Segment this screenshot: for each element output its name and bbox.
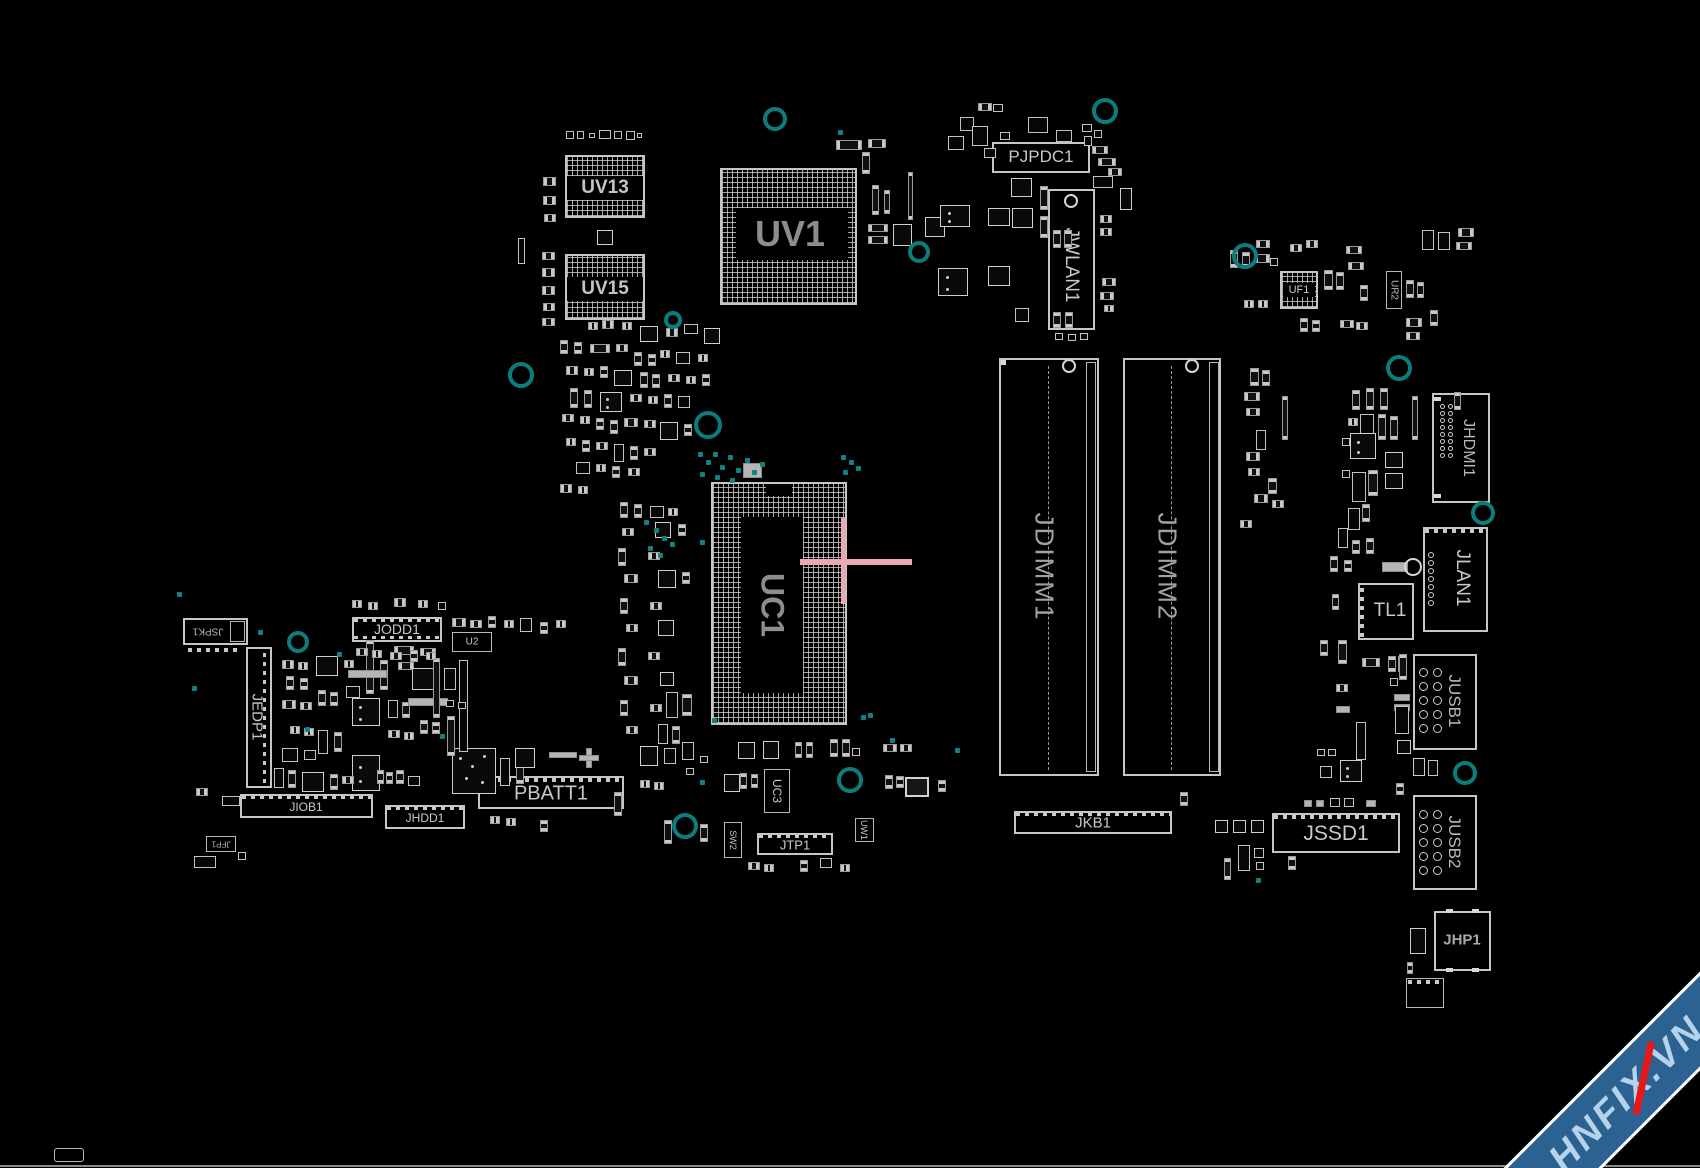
passive-component [304, 750, 316, 760]
passive-component [948, 136, 964, 150]
passive-component [352, 600, 362, 608]
component-label-jdimm2: JDIMM2 [1152, 513, 1183, 622]
passive-component [978, 103, 992, 111]
passive-component [1332, 594, 1339, 610]
mounting-hole [837, 767, 863, 793]
passive-component [1362, 504, 1370, 522]
passive-component [1068, 334, 1076, 341]
passive-component [1108, 168, 1122, 176]
passive-component [1304, 800, 1312, 807]
mounting-hole [763, 107, 787, 131]
passive-component [566, 438, 576, 446]
passive-component [872, 185, 879, 215]
passive-component [1458, 228, 1474, 237]
component-jdimm1-latch [1086, 362, 1096, 772]
passive-component [600, 366, 608, 378]
passive-component [682, 694, 692, 716]
connector-pin [1440, 411, 1445, 416]
test-point [715, 475, 720, 480]
passive-component [702, 374, 710, 386]
passive-component [386, 772, 393, 784]
passive-component [584, 390, 592, 408]
passive-component [896, 776, 904, 788]
passive-component [1324, 270, 1333, 290]
passive-component [634, 352, 642, 366]
passive-component [1120, 188, 1132, 210]
passive-component [1413, 758, 1425, 776]
passive-component [556, 620, 566, 628]
connector-pin [1448, 453, 1453, 458]
passive-component [588, 322, 598, 330]
passive-component [740, 773, 747, 789]
passive-component [1340, 320, 1354, 328]
passive-component [1336, 706, 1350, 713]
passive-component [893, 224, 912, 246]
passive-component [408, 698, 448, 706]
test-point [856, 466, 861, 471]
passive-component [1215, 820, 1228, 833]
passive-component [620, 598, 628, 614]
passive-component [520, 618, 532, 632]
connector-pin [1428, 552, 1434, 558]
test-point [728, 455, 733, 460]
component-label-sw2: SW2 [728, 830, 738, 850]
passive-component [868, 236, 888, 244]
component-label-jfp1: JFP1 [212, 840, 231, 849]
component-label-pjpdc1: PJPDC1 [1008, 147, 1073, 167]
passive-component [652, 374, 660, 388]
passive-component [432, 722, 440, 734]
passive-component [610, 420, 618, 434]
test-point [700, 780, 705, 785]
passive-component [622, 322, 632, 330]
connector-pin [1419, 668, 1428, 677]
passive-component [1080, 333, 1088, 340]
passive-component [346, 686, 360, 698]
passive-component [666, 692, 678, 718]
passive-component [698, 354, 708, 362]
passive-component [658, 724, 668, 744]
passive-component [1053, 230, 1061, 248]
passive-component [318, 730, 328, 754]
passive-component [420, 720, 428, 734]
passive-component [640, 780, 650, 788]
passive-component [648, 354, 656, 366]
passive-component [1015, 308, 1029, 322]
test-point [890, 738, 895, 743]
component-jssd1-pins [1274, 815, 1398, 819]
passive-component [540, 622, 548, 634]
passive-component [1233, 820, 1246, 833]
passive-component [938, 780, 946, 792]
connector-pin [1428, 568, 1434, 574]
passive-component [566, 131, 574, 139]
passive-component [596, 442, 608, 450]
passive-component [282, 660, 294, 669]
test-point [849, 460, 854, 465]
passive-component [584, 368, 594, 376]
connector-pin [1440, 432, 1445, 437]
passive-component [282, 748, 298, 762]
connector-pin [1419, 852, 1428, 861]
component-label-uv15: UV15 [581, 278, 629, 300]
passive-component [1397, 740, 1411, 754]
passive-component [620, 502, 628, 518]
passive-component [614, 370, 632, 386]
mounting-hole [508, 362, 534, 388]
component-label-uv1: UV1 [755, 213, 825, 255]
passive-component [684, 324, 698, 334]
passive-component [368, 602, 378, 610]
passive-component [1092, 146, 1108, 154]
component-jhp1-notch [1446, 909, 1453, 913]
passive-component [330, 692, 338, 706]
passive-component [618, 648, 626, 666]
passive-component [654, 782, 664, 790]
passive-component [452, 748, 496, 794]
passive-component [1244, 392, 1260, 401]
passive-component [1396, 783, 1404, 795]
passive-component [1317, 749, 1325, 756]
passive-component [1244, 300, 1254, 308]
passive-component [290, 726, 300, 734]
passive-component [1000, 132, 1010, 140]
passive-component [574, 342, 582, 354]
passive-component [1338, 528, 1348, 548]
passive-component [543, 196, 556, 205]
passive-component [644, 448, 656, 456]
passive-component [549, 752, 577, 758]
passive-component [622, 528, 634, 536]
passive-component [650, 506, 664, 518]
passive-component [542, 252, 555, 260]
passive-component [668, 508, 678, 516]
passive-component [1406, 332, 1420, 340]
passive-component [390, 652, 402, 660]
test-point [736, 468, 741, 473]
passive-component [988, 266, 1010, 286]
passive-component [660, 672, 674, 686]
passive-component [1251, 820, 1264, 833]
test-point [713, 452, 718, 457]
passive-component [616, 344, 628, 352]
passive-component [1342, 438, 1350, 446]
passive-component [836, 140, 862, 150]
passive-component [704, 328, 720, 344]
passive-component [800, 860, 808, 872]
passive-component [1102, 278, 1116, 286]
test-point [440, 734, 445, 739]
passive-component [377, 770, 384, 784]
test-point [698, 452, 703, 457]
passive-component [1360, 285, 1368, 301]
passive-component [352, 698, 380, 726]
passive-component [678, 396, 690, 408]
passive-component [1270, 258, 1278, 266]
passive-component [1056, 130, 1072, 142]
passive-component [640, 372, 648, 388]
passive-component [852, 748, 860, 756]
mounting-hole [664, 311, 682, 329]
passive-component [1422, 230, 1434, 250]
passive-component [1417, 282, 1424, 298]
passive-component [630, 394, 642, 402]
passive-component [1104, 305, 1114, 312]
passive-component [1336, 272, 1344, 290]
passive-component [404, 732, 414, 740]
passive-component [582, 440, 590, 452]
passive-component [1028, 117, 1048, 133]
passive-component [543, 177, 556, 186]
passive-component [1250, 368, 1259, 386]
component-jlan1-pins [1425, 529, 1486, 533]
passive-component [660, 350, 670, 358]
passive-component [1282, 396, 1288, 440]
test-point [1256, 878, 1261, 883]
connector-pin [1428, 592, 1434, 598]
passive-component [1040, 216, 1048, 238]
test-point [670, 542, 675, 547]
passive-component [356, 648, 368, 656]
test-point [868, 713, 873, 718]
passive-component [286, 676, 294, 690]
passive-component [282, 700, 296, 709]
passive-component [1406, 280, 1414, 298]
passive-component [238, 852, 246, 860]
passive-component [344, 660, 354, 668]
component-label-jlan1: JLAN1 [1451, 549, 1473, 606]
passive-component [1385, 452, 1403, 468]
passive-component [640, 746, 658, 766]
mounting-hole [1092, 98, 1118, 124]
passive-component [1399, 654, 1407, 680]
passive-component [1320, 640, 1328, 656]
passive-component [868, 224, 888, 232]
passive-component [1385, 473, 1403, 489]
component-jhp1-aux-pins [1408, 980, 1442, 984]
passive-component [624, 418, 638, 427]
passive-component [763, 741, 779, 759]
connector-pin [1433, 668, 1442, 677]
test-point [700, 472, 705, 477]
passive-component [1246, 408, 1260, 416]
passive-component [764, 864, 774, 872]
passive-component [1366, 800, 1376, 807]
passive-component [1100, 215, 1112, 223]
connector-pin [1448, 425, 1453, 430]
passive-component [1338, 640, 1347, 664]
passive-component [1094, 130, 1102, 138]
passive-component [515, 748, 535, 768]
component-label-uc1: UC1 [754, 573, 791, 637]
connector-pin [1440, 439, 1445, 444]
passive-component [1430, 310, 1438, 326]
passive-component [1407, 962, 1413, 974]
test-point [745, 458, 750, 463]
mounting-hole [1232, 243, 1258, 269]
passive-component [334, 732, 342, 752]
passive-component [580, 416, 590, 424]
passive-component [630, 446, 638, 460]
passive-component [433, 658, 440, 718]
passive-component [686, 376, 696, 384]
passive-component [506, 818, 516, 826]
passive-component [1348, 508, 1360, 530]
passive-component [600, 392, 622, 412]
passive-component [1328, 749, 1336, 756]
passive-component [1258, 300, 1268, 308]
passive-component [1388, 656, 1396, 672]
passive-component [1348, 262, 1364, 270]
passive-component [300, 678, 308, 690]
passive-component [1346, 246, 1362, 254]
component-jhdmi1-notch [1434, 494, 1441, 498]
passive-component [388, 730, 400, 738]
connector-pin [1419, 824, 1428, 833]
passive-component [700, 756, 708, 763]
component-label-pbatt1: PBATT1 [514, 783, 588, 806]
passive-component [408, 776, 420, 786]
passive-component [599, 130, 611, 139]
passive-component [1248, 468, 1260, 476]
passive-component [1312, 320, 1320, 332]
connector-pin [1419, 724, 1428, 733]
passive-component [316, 656, 338, 676]
passive-component [302, 772, 324, 792]
passive-component [672, 726, 680, 744]
component-label-uv13: UV13 [581, 177, 629, 199]
passive-component [1012, 208, 1033, 228]
passive-component [664, 394, 672, 408]
passive-component [596, 464, 606, 472]
passive-component [1330, 556, 1338, 572]
passive-component [1256, 430, 1266, 450]
passive-component [1410, 928, 1426, 954]
connector-pin [1419, 810, 1428, 819]
passive-component [1246, 452, 1260, 461]
component-label-tl1: TL1 [1374, 600, 1407, 622]
connector-pin [1433, 810, 1442, 819]
passive-component [1344, 798, 1354, 807]
passive-component [1055, 333, 1063, 340]
passive-component [1053, 312, 1061, 328]
passive-component [1380, 388, 1388, 410]
passive-component [458, 702, 466, 709]
passive-component [885, 775, 893, 789]
passive-component [438, 602, 446, 610]
passive-component [637, 133, 642, 138]
passive-component [644, 420, 656, 428]
passive-component [614, 131, 622, 139]
passive-component [795, 742, 802, 758]
passive-component [724, 774, 740, 792]
connector-pin [1433, 724, 1442, 733]
connector-pin [1433, 852, 1442, 861]
passive-component [418, 600, 428, 608]
passive-component [372, 650, 382, 658]
passive-component [972, 126, 988, 146]
passive-component [542, 286, 555, 295]
passive-component [868, 139, 886, 148]
component-label-uf1: UF1 [1289, 284, 1310, 296]
passive-component [396, 770, 404, 784]
passive-component [684, 424, 692, 436]
test-point [712, 718, 717, 723]
passive-component [602, 320, 614, 329]
component-label-jtp1: JTP1 [780, 838, 810, 853]
passive-component [300, 702, 312, 710]
test-point [843, 470, 848, 475]
mounting-hole [1453, 761, 1477, 785]
component-jhp1-notch [1472, 968, 1479, 972]
passive-component [452, 618, 466, 627]
passive-component [1412, 396, 1418, 440]
mounting-hole [287, 631, 309, 653]
mounting-hole [1471, 501, 1495, 525]
test-point [841, 455, 846, 460]
component-label-jhp1: JHP1 [1443, 932, 1481, 949]
passive-component [626, 726, 638, 734]
passive-component [1340, 760, 1362, 782]
component-jdimm2-latch [1209, 362, 1219, 772]
passive-component [1256, 240, 1270, 248]
component-label-jssd1: JSSD1 [1303, 822, 1368, 846]
passive-component [624, 676, 638, 685]
test-point [644, 520, 649, 525]
connector-pin [1448, 418, 1453, 423]
passive-component [738, 742, 755, 759]
passive-component [1428, 760, 1438, 776]
connector-pin [1433, 866, 1442, 875]
passive-component [618, 548, 626, 566]
component-jhp1-notch [1472, 909, 1479, 913]
passive-component [1268, 478, 1277, 494]
passive-component [504, 620, 514, 628]
passive-component [820, 858, 832, 868]
passive-component [330, 774, 338, 790]
component-label-jusb2: JUSB2 [1444, 816, 1464, 869]
test-point [258, 630, 263, 635]
test-point [177, 592, 182, 597]
passive-component [1098, 158, 1116, 166]
passive-component [576, 462, 590, 474]
passive-component [1272, 500, 1284, 508]
connector-pin [1419, 710, 1428, 719]
passive-component [562, 414, 574, 422]
test-point [192, 686, 197, 691]
passive-component [1348, 418, 1358, 426]
passive-component [342, 776, 354, 784]
test-point [648, 546, 653, 551]
passive-component [1395, 706, 1409, 734]
passive-component [806, 742, 813, 758]
passive-component [905, 777, 929, 797]
connector-pin [1433, 824, 1442, 833]
passive-component [938, 268, 968, 296]
passive-component [1300, 318, 1308, 332]
passive-component [614, 444, 624, 462]
connector-pin [1419, 838, 1428, 847]
connector-pin [1419, 866, 1428, 875]
passive-component [194, 856, 216, 868]
test-point [955, 748, 960, 753]
connector-pin [1448, 446, 1453, 451]
passive-component [1330, 798, 1340, 807]
passive-component [658, 620, 674, 636]
component-label-jkb1: JKB1 [1075, 815, 1111, 832]
passive-component [664, 820, 672, 844]
component-jhp1-notch [1446, 968, 1453, 972]
